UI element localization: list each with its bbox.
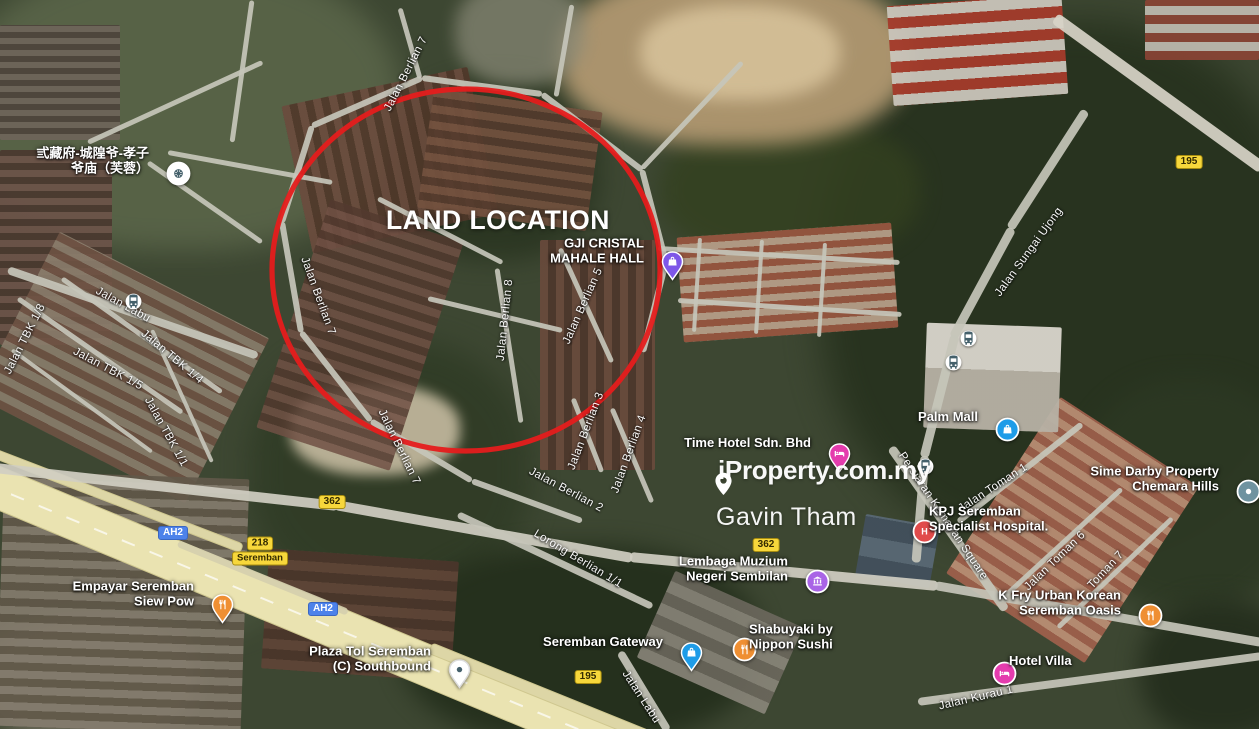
k-fry-urban-korean-label[interactable]: K Fry Urban KoreanSeremban Oasis	[998, 589, 1121, 618]
route-shield-218: 218Seremban	[232, 537, 288, 566]
plaza-tol-seremban-label[interactable]: Plaza Tol Seremban(C) Southbound	[309, 645, 431, 674]
kpj-seremban-hospital-label[interactable]: KPJ SerembanSpecialist Hospital.	[929, 505, 1048, 534]
hotel-villa-label[interactable]: Hotel Villa	[1009, 654, 1072, 669]
temple-fu-rong-label[interactable]: 弎藏府-城隍爷-孝子爷庙（芙蓉）	[36, 147, 149, 176]
lembaga-muzium-label[interactable]: Lembaga MuziumNegeri Sembilan	[679, 555, 788, 584]
route-shield-362: 362	[753, 538, 780, 552]
gji-cristal-mahale-hall-label[interactable]: GJI CRISTALMAHALE HALL	[550, 237, 644, 266]
satellite-map-canvas[interactable]: Jalan Berlian 7Jalan Berlian 7Jalan Berl…	[0, 0, 1259, 729]
route-shield-ah2: AH2	[308, 602, 338, 616]
seremban-gateway-label[interactable]: Seremban Gateway	[543, 635, 663, 650]
agent-name-watermark: Gavin Tham	[716, 503, 857, 532]
route-shield-195: 195	[1176, 155, 1203, 169]
time-hotel-label[interactable]: Time Hotel Sdn. Bhd	[684, 436, 811, 451]
land-location-label: LAND LOCATION	[386, 205, 610, 236]
svg-text:H: H	[921, 527, 928, 537]
empayar-seremban-siew-pow-label[interactable]: Empayar SerembanSiew Pow	[73, 580, 194, 609]
palm-mall-label[interactable]: Palm Mall	[918, 410, 978, 425]
route-shield-ah2: AH2	[158, 526, 188, 540]
sime-darby-chemara-hills-label[interactable]: Sime Darby PropertyChemara Hills	[1090, 465, 1219, 494]
route-shield-195: 195	[575, 670, 602, 684]
iproperty-watermark: iProperty.com.my	[714, 455, 931, 486]
road-label-jalan-kurau-1: Jalan Kurau 1	[938, 684, 1015, 713]
shabuyaki-nippon-sushi-label[interactable]: Shabuyaki byNippon Sushi	[749, 623, 833, 652]
route-shield-362: 362	[319, 495, 346, 509]
iproperty-brand-text: iProperty.com.my	[718, 455, 931, 486]
